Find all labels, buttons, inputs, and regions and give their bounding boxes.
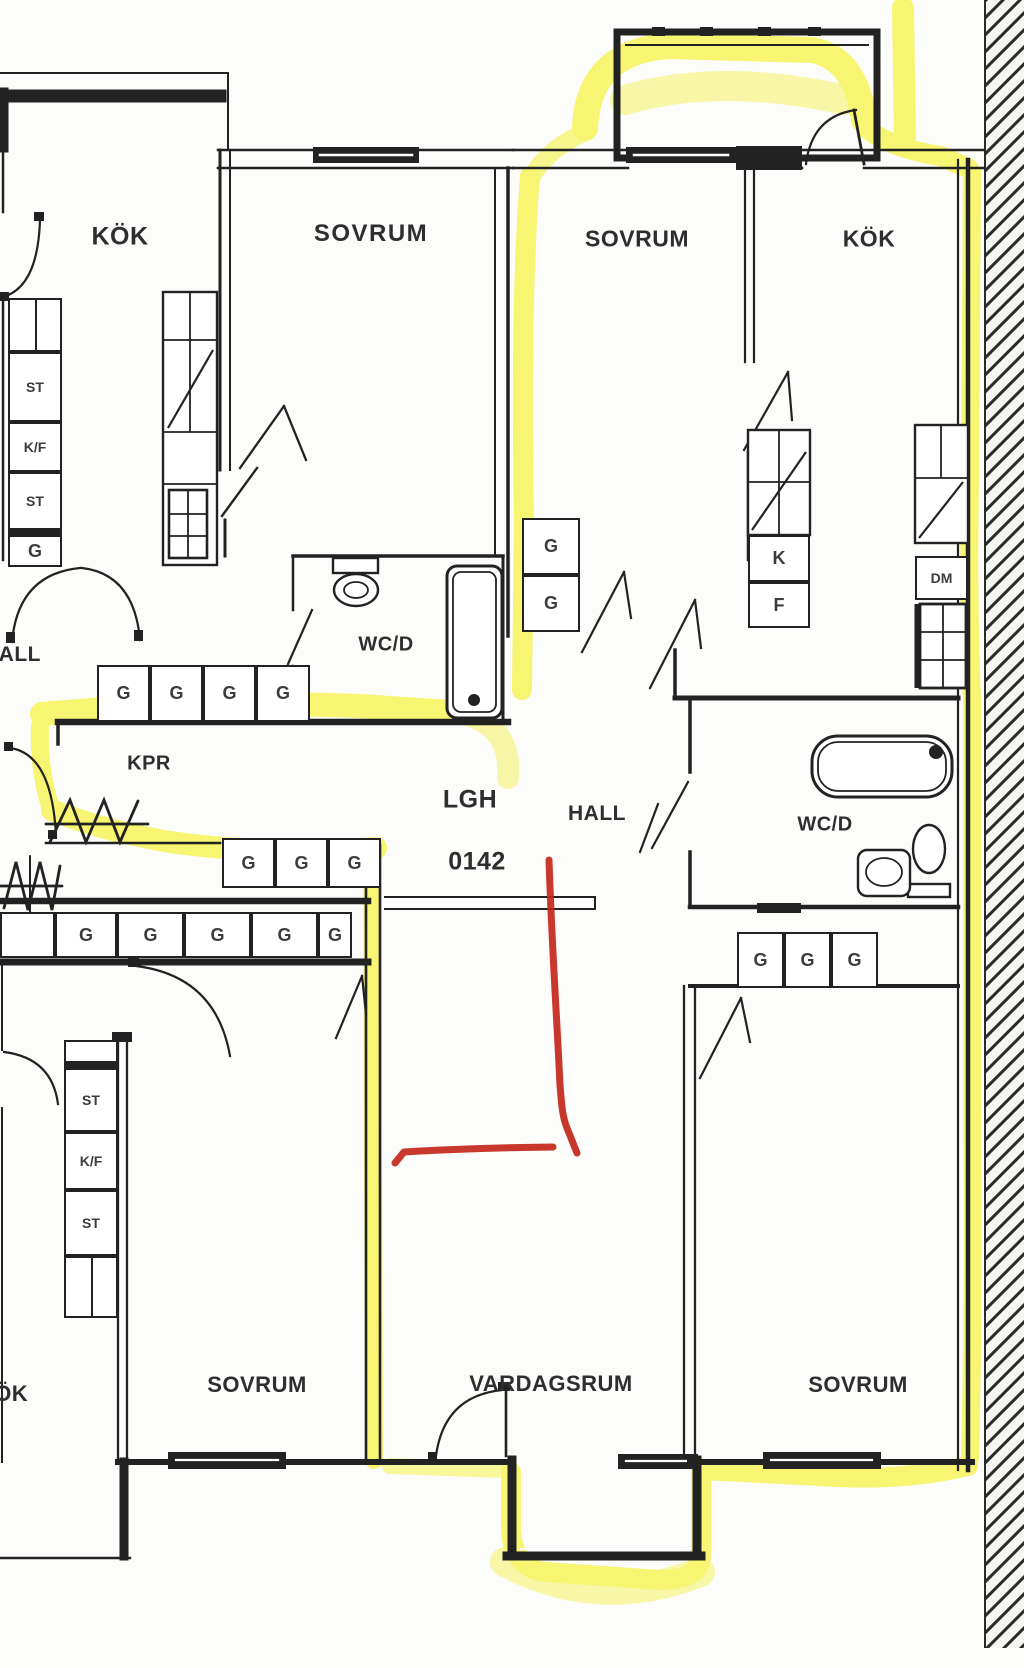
closet-cell-g: G [522, 518, 580, 575]
closet-cell-g: G [522, 575, 580, 632]
closet-cell-g: G [222, 838, 275, 888]
cell-divider [35, 300, 37, 350]
closet-cell-g: G [737, 932, 784, 988]
apartment-id-prefix: LGH [443, 786, 497, 815]
room-label-kok-top-right: KÖK [843, 226, 896, 253]
room-label-vardagsrum: VARDAGSRUM [469, 1371, 632, 1397]
closet-cell-g: G [784, 932, 831, 988]
closet-cell-g: G [150, 665, 203, 722]
closet-cell-g: G [251, 912, 318, 958]
closet-cell [64, 1256, 118, 1318]
closet-cell-g: G [318, 912, 352, 958]
closet-cell-st: ST [8, 352, 62, 422]
closet-cell-kf: K/F [64, 1132, 118, 1190]
room-label-kok-bottom-left: KÖK [0, 1381, 28, 1407]
floor-plan-page: STK/FSTGGGGGGGKFDMGGGGGGGGGGGSTK/FST KÖK… [0, 0, 1024, 1668]
closet-cell-g: G [117, 912, 184, 958]
room-label-hall-right: HALL [568, 802, 626, 826]
closet-cell-g: G [275, 838, 328, 888]
closet-cell-f: F [748, 582, 810, 628]
room-label-wcd-right: WC/D [797, 814, 852, 837]
closet-cell-st: ST [64, 1068, 118, 1132]
room-label-sovrum-top-middle: SOVRUM [585, 226, 689, 253]
closet-cell-st: ST [64, 1190, 118, 1256]
closet-cell [0, 912, 55, 958]
room-label-kpr: KPR [127, 753, 171, 776]
closet-cell-g: G [184, 912, 251, 958]
closet-cell-k: K [748, 535, 810, 582]
closet-cell-g: G [55, 912, 117, 958]
room-label-sovrum-bottom-right: SOVRUM [808, 1372, 908, 1398]
closet-cell-g: G [97, 665, 150, 722]
closet-cell-g: G [8, 530, 62, 567]
closet-cell-g: G [203, 665, 256, 722]
closet-cell-g: G [831, 932, 878, 988]
room-label-wcd-left: WC/D [358, 634, 413, 657]
cell-divider [91, 1258, 93, 1316]
closet-cell-kf: K/F [8, 422, 62, 472]
closet-cell-g: G [256, 665, 310, 722]
closet-cell [8, 298, 62, 352]
room-label-sovrum-top-left: SOVRUM [314, 220, 428, 248]
closet-cell-g: G [328, 838, 381, 888]
closet-cell [64, 1040, 118, 1068]
closet-cell-st: ST [8, 472, 62, 530]
closet-cell-dm: DM [915, 556, 968, 600]
room-label-sovrum-bottom-left: SOVRUM [207, 1372, 307, 1398]
room-label-kok-top-left: KÖK [91, 223, 148, 252]
apartment-id-number: 0142 [448, 848, 506, 877]
room-label-hall-upper-left: HALL [0, 643, 41, 667]
